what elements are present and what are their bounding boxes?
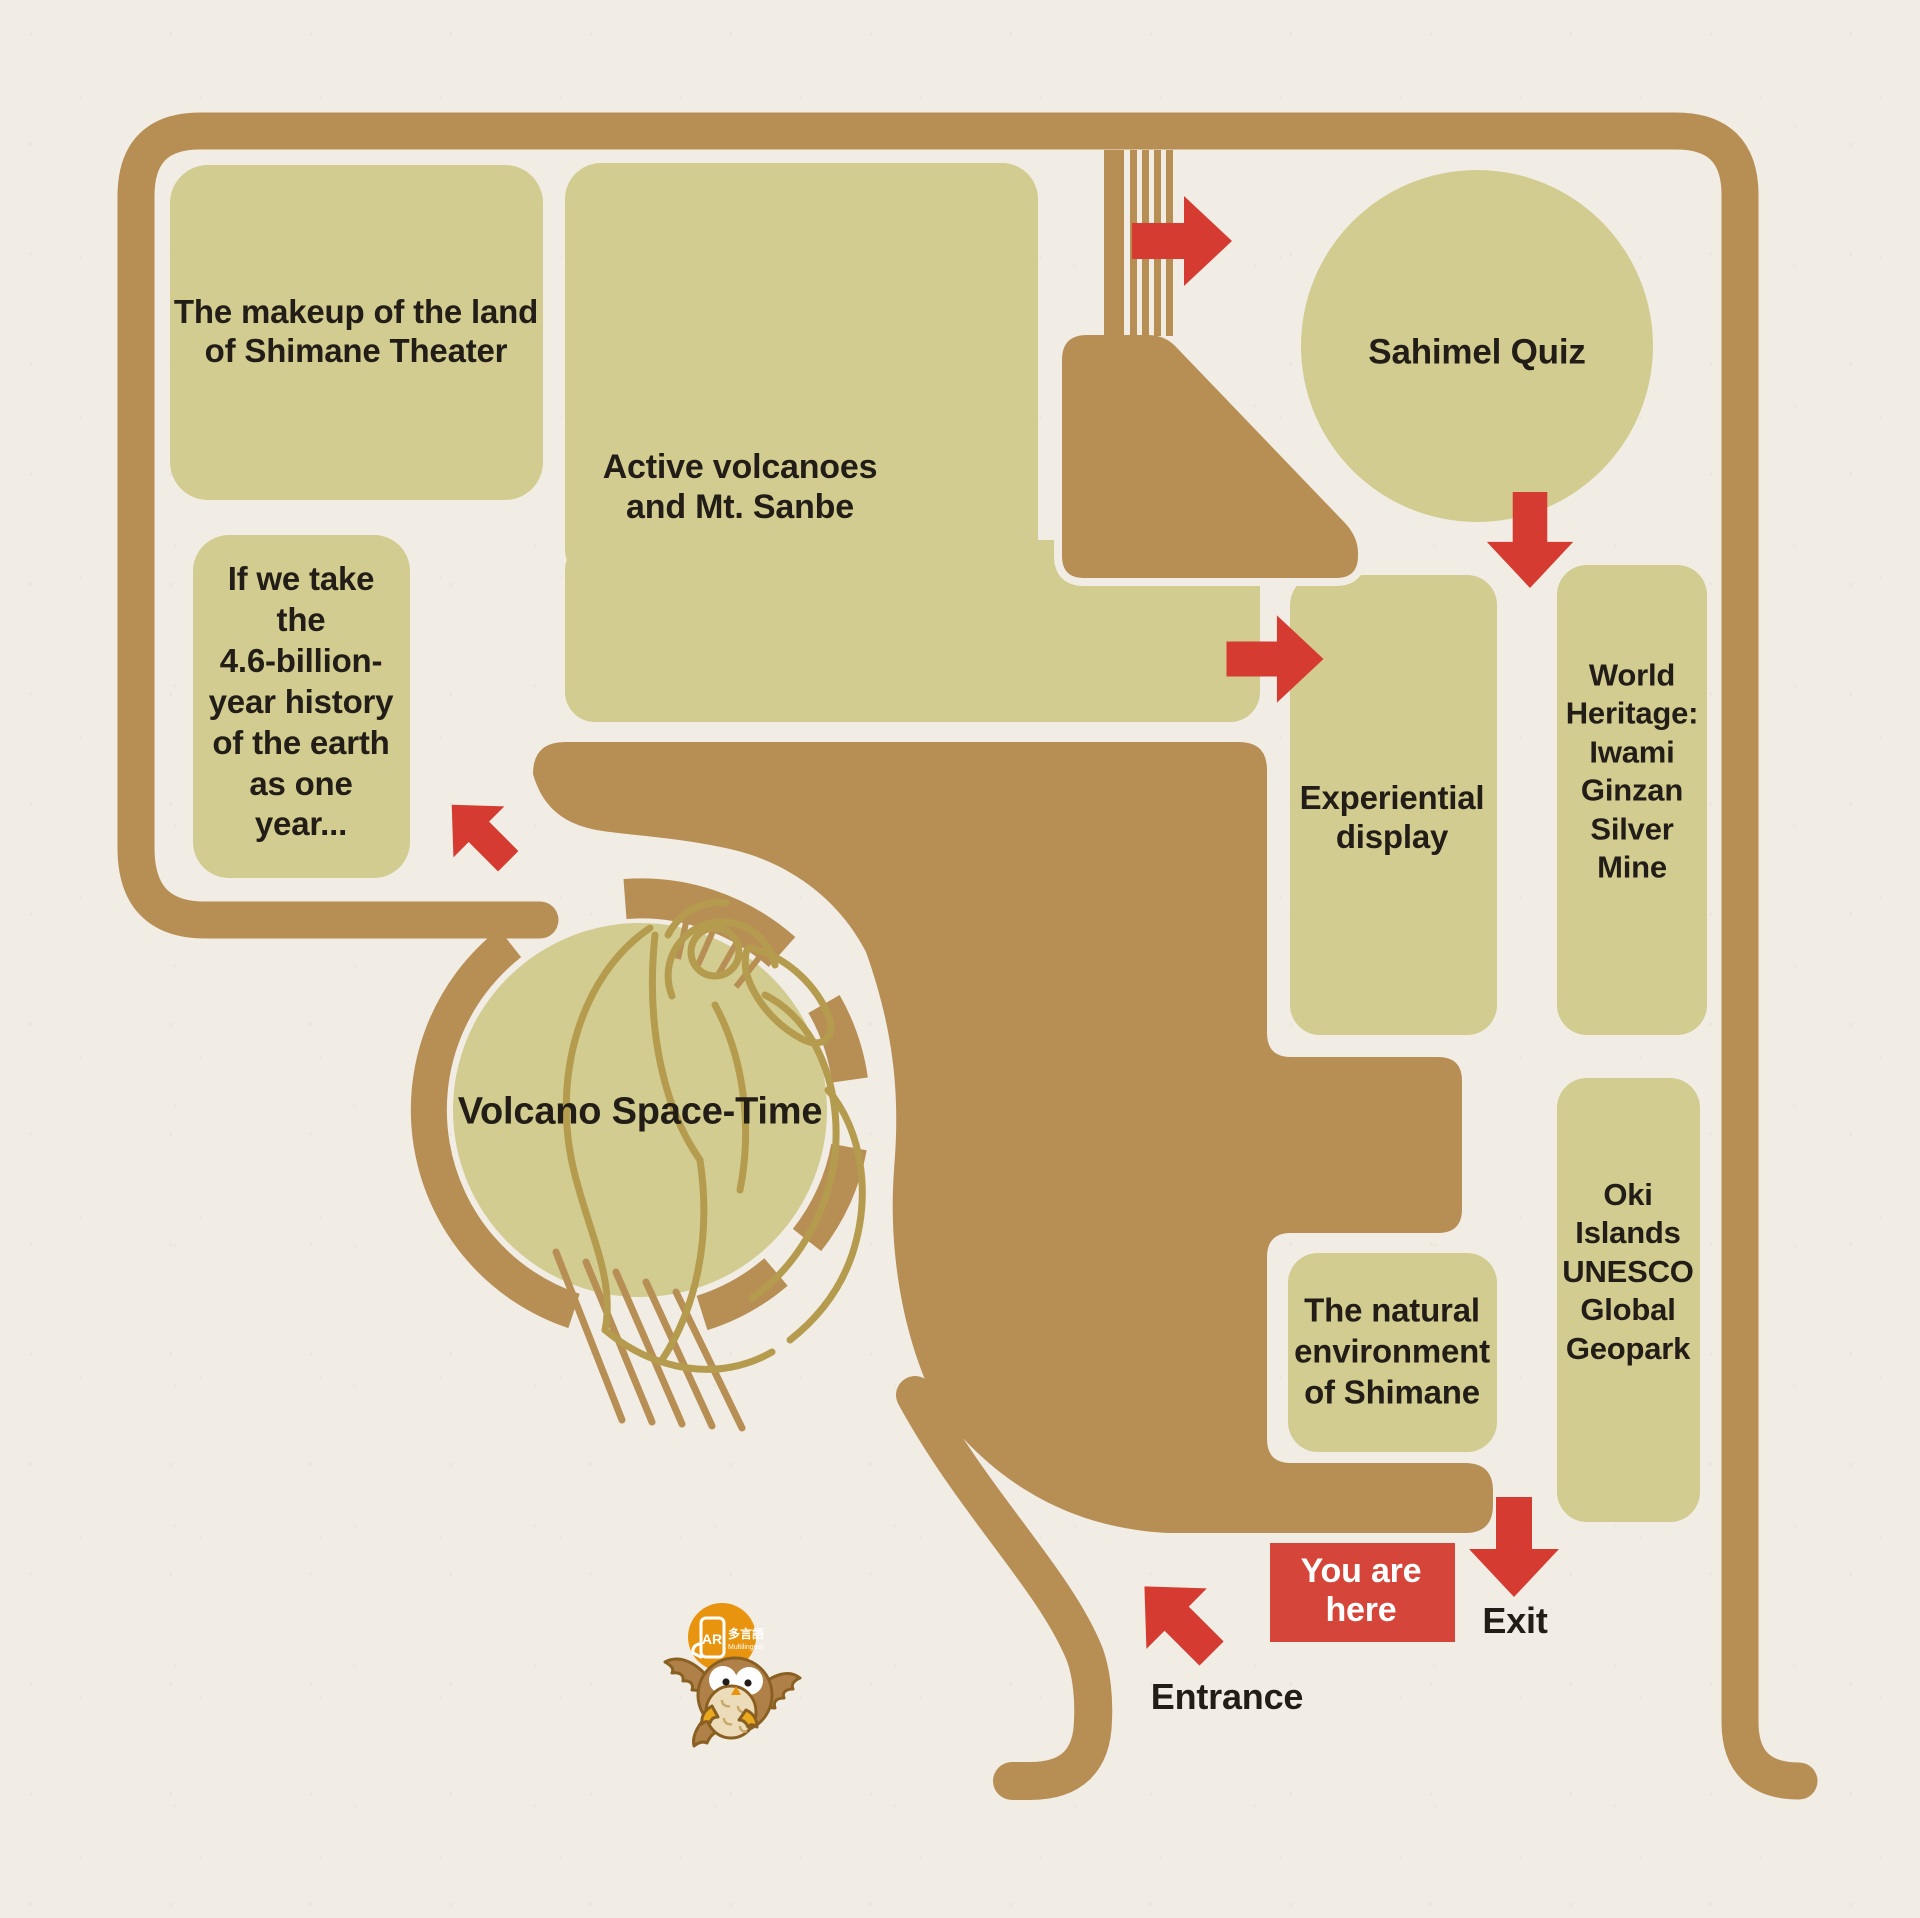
label-entrance: Entrance bbox=[1151, 1676, 1303, 1718]
badge-multilingual-en: Multilingual bbox=[728, 1644, 763, 1651]
label-exit: Exit bbox=[1482, 1600, 1547, 1642]
label-volcano-space-time: Volcano Space-Time bbox=[458, 1090, 823, 1135]
label-you-are-here: You are here bbox=[1301, 1552, 1422, 1630]
label-active-volcanoes: Active volcanoes and Mt. Sanbe bbox=[603, 447, 878, 527]
label-world-heritage: World Heritage: Iwami Ginzan Silver Mine bbox=[1566, 657, 1699, 888]
label-sahimel-quiz: Sahimel Quiz bbox=[1368, 331, 1585, 372]
label-experiential-display: Experiential display bbox=[1300, 779, 1485, 857]
badge-ar-text: AR bbox=[702, 1631, 722, 1647]
label-theater: The makeup of the land of Shimane Theate… bbox=[174, 293, 538, 371]
label-oki-geopark: Oki Islands UNESCO Global Geopark bbox=[1562, 1176, 1693, 1368]
owl-right-eye bbox=[744, 1679, 751, 1686]
badge-multilingual-jp: 多言語 bbox=[728, 1626, 764, 1641]
label-history-one-year: If we take the 4.6-billion- year history… bbox=[209, 559, 394, 845]
museum-floor-map: AR 多言語 Multilingual bbox=[0, 0, 1920, 1918]
route-arrow-entrance bbox=[1114, 1556, 1242, 1684]
owl-left-eye bbox=[722, 1678, 729, 1685]
label-natural-environment: The natural environment of Shimane bbox=[1294, 1291, 1490, 1414]
route-arrow-history bbox=[426, 779, 533, 886]
owl-mascot bbox=[665, 1658, 800, 1746]
floor-map-graphics: AR 多言語 Multilingual bbox=[0, 0, 1920, 1918]
